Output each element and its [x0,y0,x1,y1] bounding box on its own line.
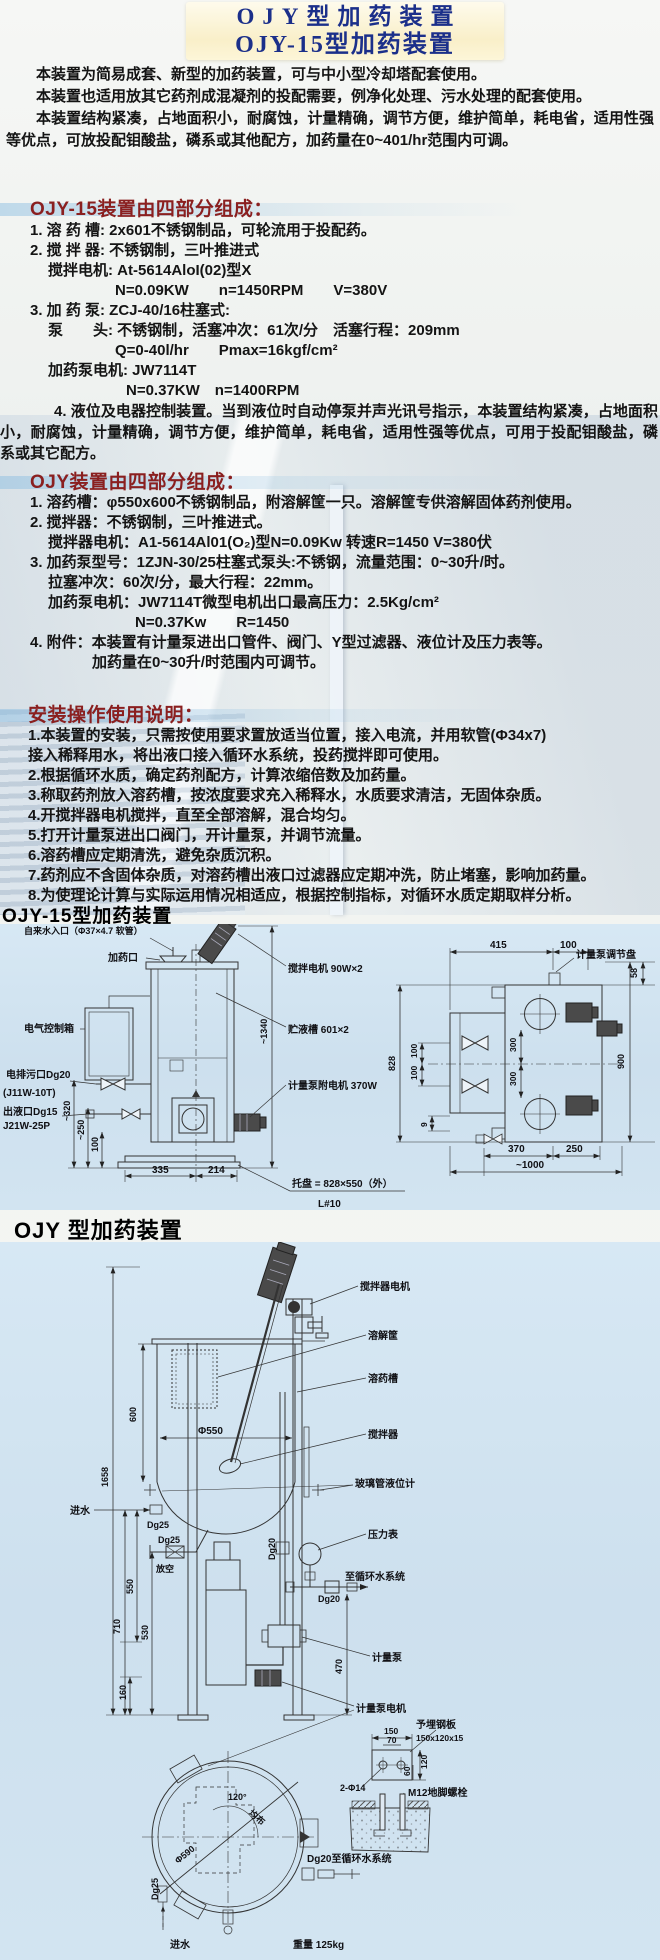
dim-60: 60 [402,1766,412,1776]
dim-214: 214 [208,1165,225,1176]
label-adjust-plate: 计量泵调节盘 [576,948,636,961]
label-embed-plate: 予埋钢板 [416,1718,457,1731]
label-vent: 放空 [155,1563,174,1574]
list-item: 2.根据循环水质，确定药剂配方，计算浓缩倍数及加药量。 [28,766,660,786]
label-dg25-top: Dg25 [147,1520,169,1530]
label-bolt-holes: 2-Φ14 [340,1783,365,1793]
intro-p3: 本装置结构紧凑，占地面积小，耐腐蚀，计量精确，调节方便，维护简单，耗电省，适用性… [6,108,654,152]
list-item: 加药量在0~30升/时范围内可调节。 [92,653,660,673]
dim-415: 415 [490,940,507,951]
section-heading-install: 安装操作使用说明： [28,700,204,727]
list-item: 2. 搅 拌 器: 不锈钢制，三叶推进式 [30,241,660,261]
label-dosing-port: 加药口 [107,951,138,964]
list-item: 接入稀释用水，将出液口接入循环水系统，投药搅拌即可使用。 [28,746,660,766]
dim-phi550: Φ550 [198,1426,223,1437]
section-ojy15-list: 1. 溶 药 槽: 2x601不锈钢制品，可轮流用于投配药。 2. 搅 拌 器:… [30,221,660,464]
label-mixer: 搅拌器 [368,1428,399,1441]
list-item: 搅拌器电机：A1-5614Al01(O₂)型N=0.09Kw 转速R=1450 … [48,533,660,553]
diagram1: 自来水入口（Φ37×4.7 软管） 加药口 电气控制箱 电排污口Dg20 (J1… [0,924,660,1210]
list-item: 泵 头: 不锈钢制，活塞冲次：61次/分 活塞行程：209mm [48,321,660,341]
dim-370: 370 [508,1144,525,1155]
dim-100b: 100 [409,1066,419,1080]
dim-828: 828 [387,1056,397,1071]
label-basket: 溶解筐 [368,1329,398,1342]
list-item: 5.打开计量泵进出口阀门，开计量泵，并调节流量。 [28,826,660,846]
dim-100a: 100 [409,1044,419,1058]
list-item: 2. 搅拌器：不锈钢制，三叶推进式。 [30,513,660,533]
diagram1-labels: 自来水入口（Φ37×4.7 软管） 加药口 电气控制箱 电排污口Dg20 (J1… [3,925,639,1210]
list-item: 拉塞冲次：60次/分，最大行程：22mm。 [48,573,660,593]
list-item: 4. 液位及电器控制装置。当到液位时自动停泵并声光讯号指示，本装置结构紧凑，占地… [0,401,658,464]
list-item: 4. 附件：本装置有计量泵进出口管件、阀门、Y型过滤器、液位计及压力表等。 [30,633,660,653]
dim-100: 100 [90,1137,100,1152]
label-dg25-mid: Dg25 [158,1535,180,1545]
label-pump-motor: 计量泵附电机 370W [288,1079,377,1092]
label-tank: 溶药槽 [368,1372,398,1385]
label-water-inlet: 自来水入口（Φ37×4.7 软管） [24,925,143,936]
label-to-system: 至循环水系统 [345,1570,405,1583]
label-evenly: 均布 [247,1807,268,1827]
label-inlet-top: 进水 [70,1504,91,1517]
dim-710: 710 [112,1619,122,1634]
list-item: 加药泵电机：JW7114T微型电机出口最高压力：2.5Kg/cm² [48,593,660,613]
page-title-line1: OJY型加药装置 [194,2,504,31]
list-item: 1. 溶 药 槽: 2x601不锈钢制品，可轮流用于投配药。 [30,221,660,241]
list-item: 3.称取药剂放入溶药槽，按浓度要求充入稀释水，水质要求清洁，无固体杂质。 [28,786,660,806]
label-inlet-bottom: 进水 [170,1938,191,1951]
list-item: 7.药剂应不含固体杂质，对溶药槽出液口过滤器应定期冲洗，防止堵塞，影响加药量。 [28,866,660,886]
intro-p2: 本装置也适用放其它药剂成混凝剂的投配需要，例净化处理、污水处理的配套使用。 [6,86,654,108]
dim-335: 335 [152,1165,169,1176]
list-item: 4.开搅拌器电机搅拌，直至全部溶解，混合均匀。 [28,806,660,826]
dim-250: ~250 [76,1120,86,1140]
label-dg20-pipe: Dg20 [267,1538,277,1560]
label-plate-size: 150x120x15 [416,1733,464,1743]
dim-900: 900 [616,1054,626,1069]
list-item: Q=0-40l/hr Pmax=16kgf/cm² [115,341,660,361]
dim-58: 58 [629,968,639,978]
label-outlet-model: J21W-25P [3,1121,50,1132]
front-elevation [144,1242,368,1720]
list-item: 6.溶药槽应定期清洗，避免杂质沉积。 [28,846,660,866]
dim-320: ~320 [62,1101,72,1121]
intro-paragraphs: 本装置为简易成套、新型的加药装置，可与中小型冷却塔配套使用。 本装置也适用放其它… [6,64,654,152]
tank-plan-circle [142,1751,360,1934]
dim-470: 470 [334,1659,344,1674]
list-item: 1.本装置的安装，只需按使用要求置放适当位置，接入电流，并用软管(Φ34x7) [28,726,660,746]
list-item: N=0.09KW n=1450RPM V=380V [115,281,660,301]
list-item: 1. 溶药槽：φ550x600不锈钢制品，附溶解筐一只。溶解筐专供溶解固体药剂使… [30,493,660,513]
label-120deg: 120° [228,1792,247,1802]
label-pressure-gauge: 压力表 [368,1528,399,1541]
label-pump: 计量泵 [372,1651,403,1664]
dim-530: 530 [140,1625,150,1640]
list-item: 搅拌电机: At-5614AloI(02)型X [48,261,660,281]
page-title-line2: OJY-15型加药装置 [186,31,504,59]
label-drain-port: 电排污口Dg20 [6,1068,71,1081]
list-item: 加药泵电机: JW7114T [48,361,660,381]
label-phi590: Φ590 [173,1844,197,1866]
list-item: N=0.37KW n=1400RPM [126,381,660,401]
label-angle-steel: L#10 [318,1199,341,1210]
dim-1000: ~1000 [516,1160,545,1171]
dim-160: 160 [118,1685,128,1700]
section-install-list: 1.本装置的安装，只需按使用要求置放适当位置，接入电流，并用软管(Φ34x7) … [28,726,660,906]
dim-300a: 300 [508,1038,518,1052]
label-pump-motor: 计量泵电机 [356,1702,406,1715]
dim-9: 9 [419,1122,429,1127]
label-weight: 重量 125kg [293,1938,344,1951]
list-item: 3. 加药泵型号：1ZJN-30/25柱塞式泵头:不锈钢，流量范围：0~30升/… [30,553,660,573]
label-dg20-system: Dg20至循环水系统 [307,1852,391,1865]
dim-550: 550 [125,1579,135,1594]
diagram2-heading: OJY 型加药装置 [14,1213,183,1245]
list-item: 3. 加 药 泵: ZCJ-40/16柱塞式: [30,301,660,321]
label-drain-model: (J11W-10T) [3,1088,56,1099]
diagram2-drawing: 搅拌器电机 溶解筐 溶药槽 搅拌器 玻璃管液位计 压力表 至循环水系统 Dg20… [0,1242,660,1960]
list-item: N=0.37Kw R=1450 [135,613,660,633]
label-dg25-plan: Dg25 [150,1878,160,1900]
dim-250b: 250 [566,1144,583,1155]
dim-300b: 300 [508,1072,518,1086]
label-tray: 托盘 = 828×550（外） [292,1177,393,1190]
diagram1-drawing: 自来水入口（Φ37×4.7 软管） 加药口 电气控制箱 电排污口Dg20 (J1… [0,924,660,1210]
label-anchor-bolt: M12地脚螺栓 [408,1786,467,1799]
dim-1340: ~1340 [259,1019,269,1044]
title-panel: OJY型加药装置 OJY-15型加药装置 [186,2,504,60]
diagram2: 搅拌器电机 溶解筐 溶药槽 搅拌器 玻璃管液位计 压力表 至循环水系统 Dg20… [0,1242,660,1960]
label-control-box: 电气控制箱 [24,1022,74,1035]
section-heading-ojy15: OJY-15装置由四部分组成： [30,194,273,221]
label-mixer-motor: 搅拌器电机 [360,1280,410,1293]
dim-100-top: 100 [560,940,577,951]
label-level-gauge: 玻璃管液位计 [355,1477,415,1490]
intro-p1: 本装置为简易成套、新型的加药装置，可与中小型冷却塔配套使用。 [6,64,654,86]
section-heading-ojy: OJY装置由四部分组成： [30,467,245,494]
label-mixer-motor: 搅拌电机 90W×2 [288,962,363,975]
dim-600: 600 [128,1407,138,1422]
dim-120: 120 [419,1755,429,1769]
dim-70: 70 [387,1735,397,1745]
dim-1658: 1658 [100,1467,110,1487]
label-storage-tank: 贮液槽 601×2 [287,1023,349,1036]
tank-plan-view [428,973,622,1144]
label-dg20-valve: Dg20 [318,1594,340,1604]
section-ojy-list: 1. 溶药槽：φ550x600不锈钢制品，附溶解筐一只。溶解筐专供溶解固体药剂使… [30,493,660,673]
label-outlet-port: 出液口Dg15 [3,1105,58,1118]
